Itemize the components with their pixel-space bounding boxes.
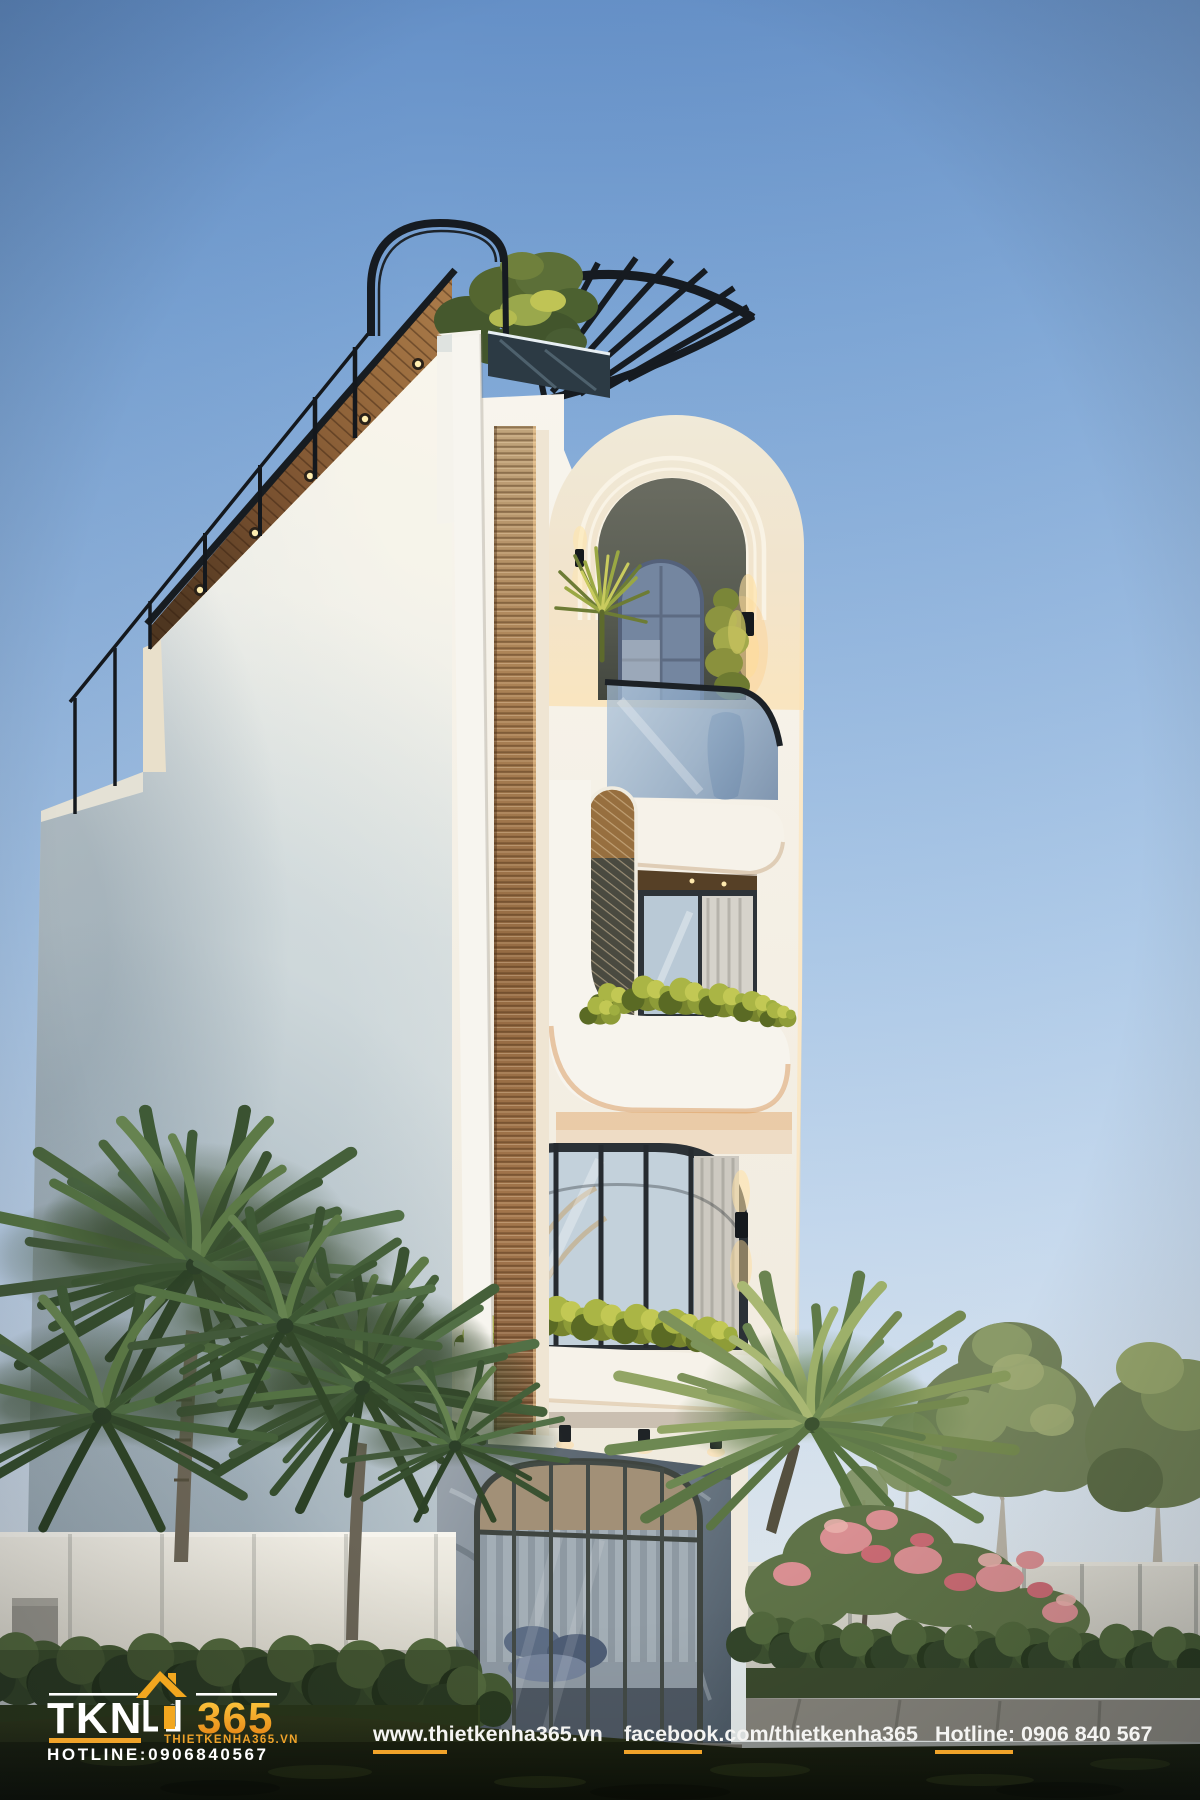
svg-text:Hotline: 0906 840 567: Hotline: 0906 840 567: [935, 1722, 1153, 1746]
svg-text:www.thietkenha365.vn: www.thietkenha365.vn: [372, 1722, 603, 1746]
svg-text:TKN: TKN: [47, 1694, 143, 1743]
svg-text:facebook.com/thietkenha365: facebook.com/thietkenha365: [624, 1722, 918, 1746]
svg-text:HOTLINE:0906840567: HOTLINE:0906840567: [47, 1745, 269, 1764]
